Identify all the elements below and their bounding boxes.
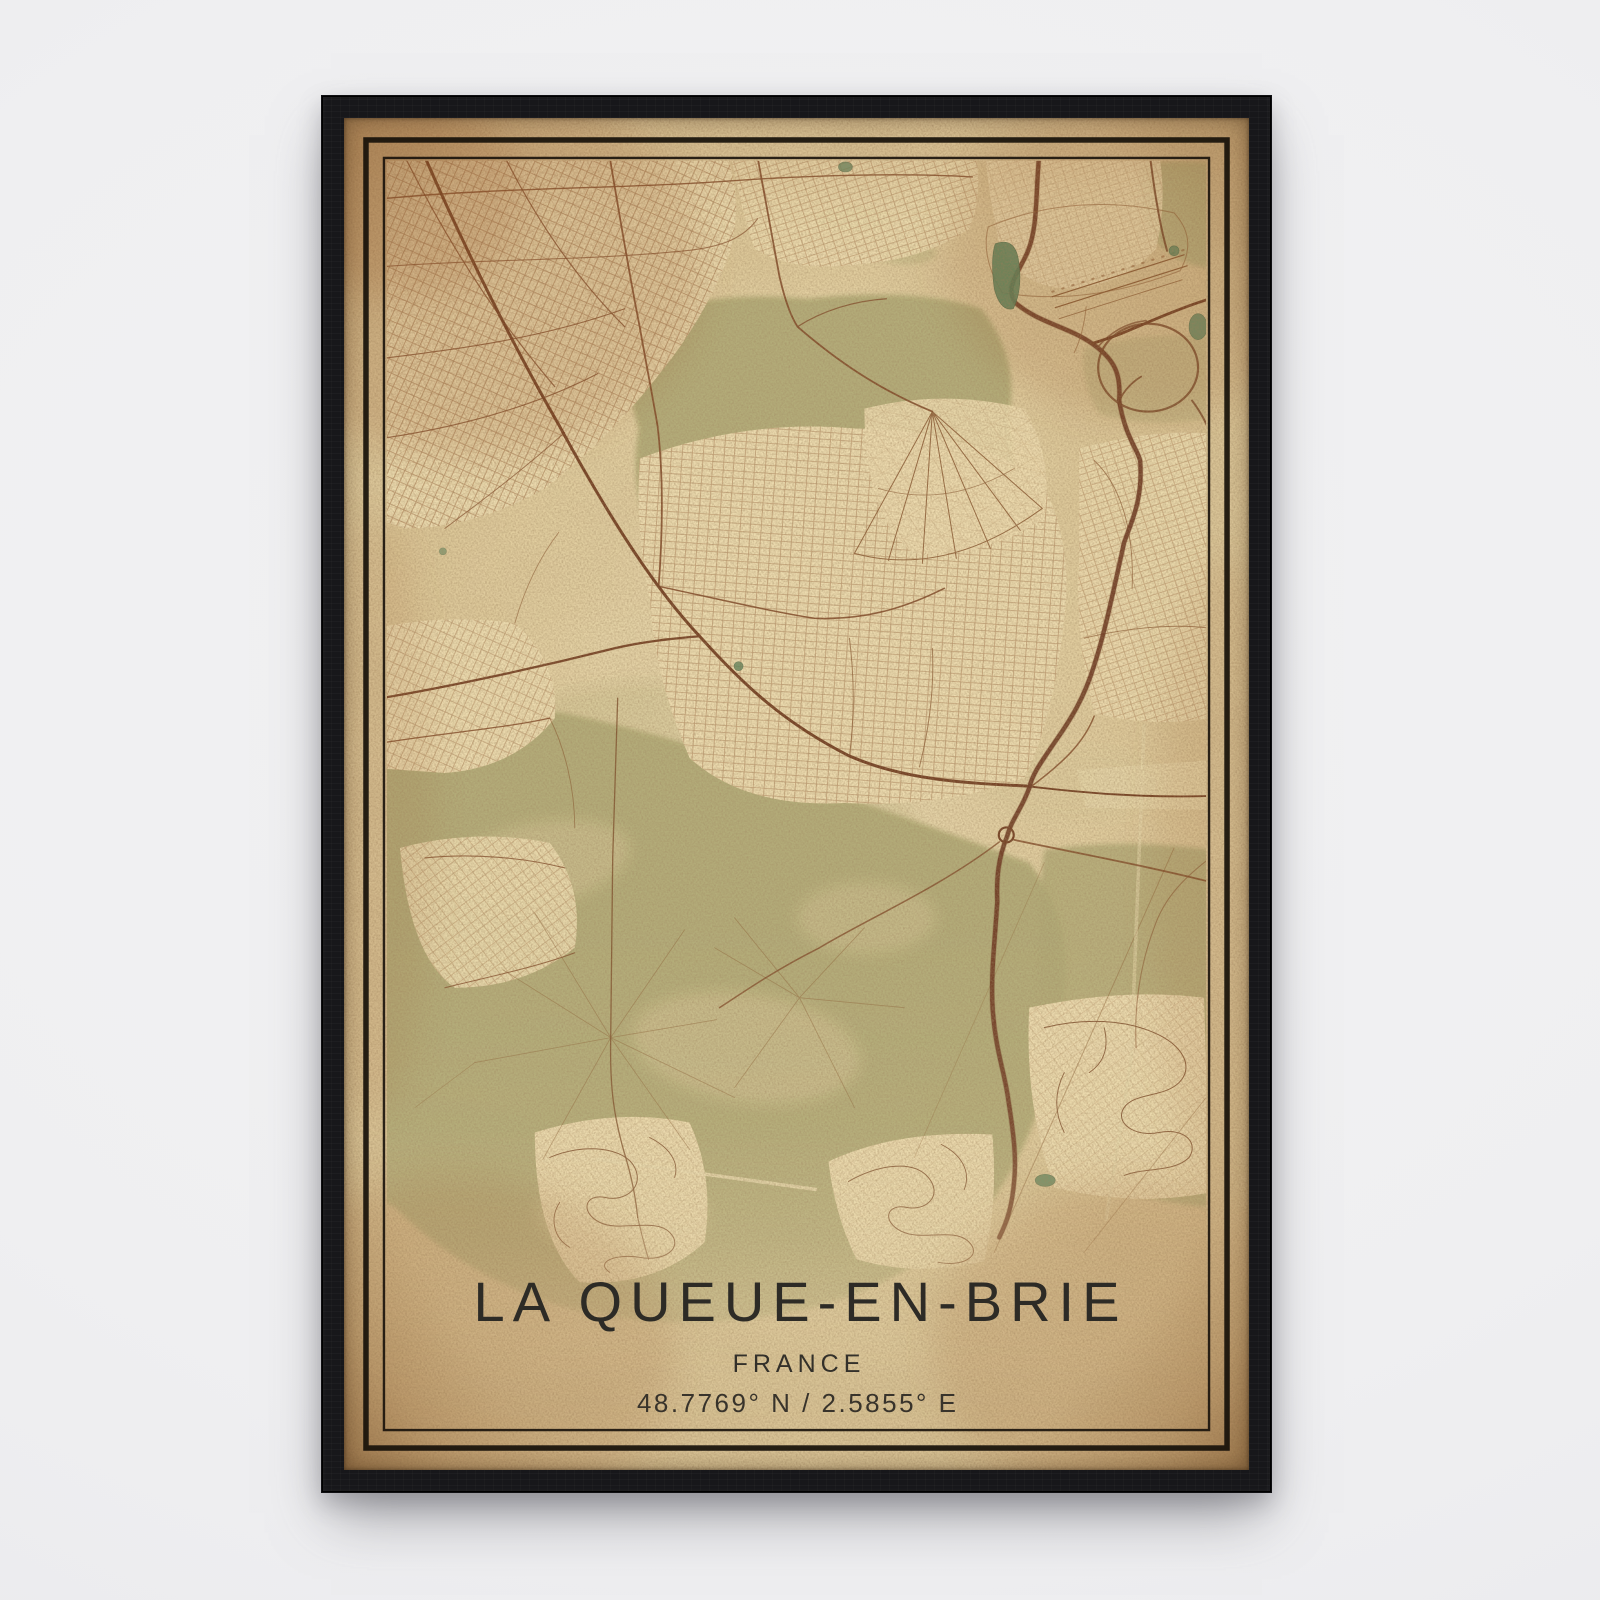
poster-paper: LA QUEUE-EN-BRIE FRANCE 48.7769° N / 2.5… (344, 118, 1249, 1470)
poster-frame: LA QUEUE-EN-BRIE FRANCE 48.7769° N / 2.5… (321, 95, 1272, 1493)
paper-vignette (344, 118, 1249, 1470)
map-artwork (344, 118, 1249, 1470)
product-photo-background: LA QUEUE-EN-BRIE FRANCE 48.7769° N / 2.5… (0, 0, 1600, 1600)
